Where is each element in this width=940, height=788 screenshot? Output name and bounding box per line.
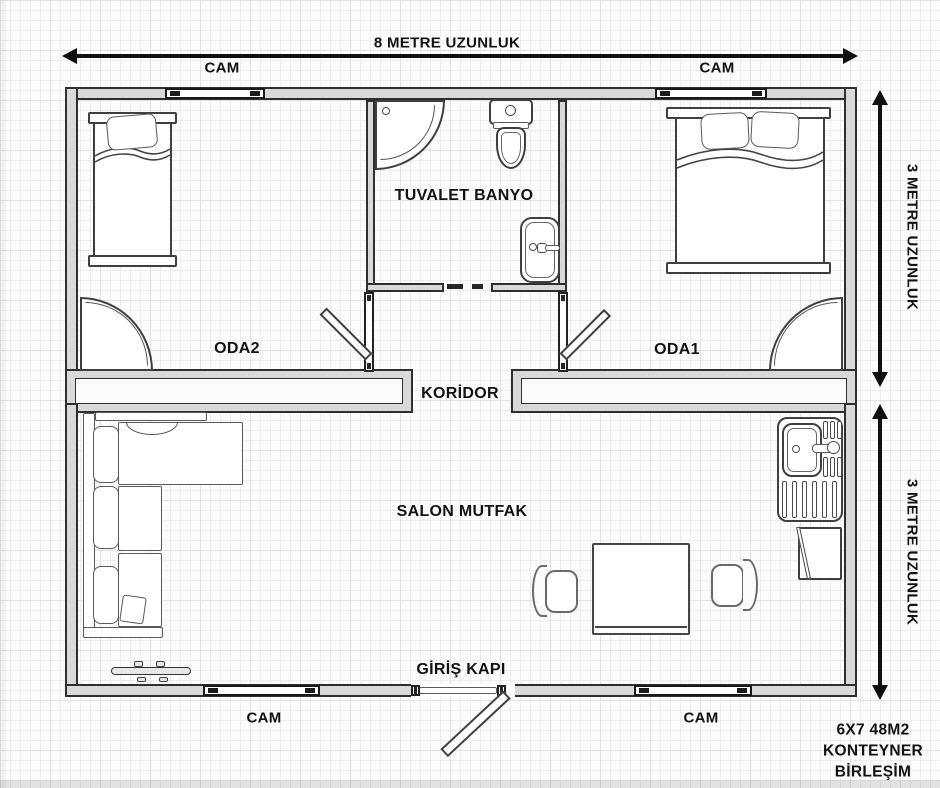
- plan-note-line2: KONTEYNER: [823, 741, 923, 762]
- drainboard-slat: [812, 481, 817, 518]
- cam-label-bottom-right: CAM: [683, 710, 718, 727]
- double-bed-blanket: [676, 142, 824, 178]
- room-label-living: SALON MUTFAK: [397, 503, 528, 521]
- bathroom-door-mark-left: [447, 284, 463, 289]
- entrance-threshold: [419, 687, 497, 694]
- drainboard-slat: [830, 457, 835, 477]
- dimension-label-right-upper: 3 METRE UZUNLUK: [904, 164, 921, 310]
- drainboard-slat: [823, 421, 828, 439]
- wardrobe-oda1: [769, 297, 843, 371]
- window-top-left: [165, 88, 265, 99]
- drainboard-slat: [822, 481, 827, 518]
- double-bed-pillow-left: [700, 112, 750, 150]
- bathroom-left-wall: [366, 100, 375, 292]
- entrance-label: GİRİŞ KAPI: [416, 661, 505, 679]
- lower-unit-right-wall: [844, 403, 857, 697]
- shower: [375, 100, 445, 170]
- arrow-head-left-icon: [62, 48, 77, 64]
- arrow-head-right-icon: [843, 48, 858, 64]
- mid-wall-cavity-left: [75, 378, 403, 404]
- window-bottom-right: [634, 685, 752, 696]
- upper-unit-right-wall: [844, 87, 857, 381]
- cam-label-bottom-left: CAM: [246, 710, 281, 727]
- floor-plan: 8 METRE UZUNLUK CAM CAM TUVALET BANYO: [0, 0, 940, 788]
- room-label-bathroom: TUVALET BANYO: [395, 187, 534, 205]
- sofa-cushion-3: [93, 566, 119, 624]
- kitchen-sink-drain-icon: [792, 445, 800, 453]
- toilet-bowl-rim: [501, 132, 521, 164]
- drainboard-slat: [782, 481, 787, 518]
- dimension-label-top: 8 METRE UZUNLUK: [374, 35, 520, 52]
- arrow-head-up-icon: [872, 90, 888, 105]
- room-label-corridor: KORİDOR: [421, 385, 499, 403]
- plan-note: 6X7 48M2 KONTEYNER BİRLEŞİM: [823, 720, 923, 783]
- arrow-head-down-icon: [872, 685, 888, 700]
- drainboard-slat: [802, 481, 807, 518]
- entrance-post-left: [411, 685, 420, 696]
- wardrobe-oda2-inner-curve: [85, 302, 148, 366]
- washbasin-drain-icon: [529, 243, 537, 251]
- upper-unit-left-wall: [65, 87, 78, 381]
- single-bed-pillow: [106, 113, 159, 151]
- chair-right-back: [743, 559, 758, 611]
- dining-table-edge-line: [595, 626, 687, 628]
- cam-label-top-right: CAM: [699, 60, 734, 77]
- drainboard-slat: [832, 481, 837, 518]
- low-bench-foot-left: [137, 677, 146, 682]
- arrow-head-down-icon: [872, 372, 888, 387]
- paper-edge-left: [0, 0, 6, 788]
- sofa-chaise-notch: [126, 422, 178, 435]
- sofa-seat-mid: [118, 486, 162, 551]
- bathroom-door-mark-right: [472, 284, 483, 289]
- kitchen-faucet-ring-icon: [827, 441, 840, 454]
- sofa-bottom-rail: [83, 627, 163, 638]
- sofa-chaise: [118, 422, 243, 485]
- room-label-oda2: ODA2: [214, 340, 260, 358]
- window-top-right: [655, 88, 767, 99]
- low-bench-bar: [111, 667, 191, 675]
- dimension-arrow-top: [74, 54, 844, 58]
- sofa-small-pillow: [119, 594, 147, 624]
- mid-wall-cavity-right: [521, 378, 847, 404]
- drainboard-slat: [823, 457, 828, 477]
- dining-table: [592, 543, 690, 635]
- drainboard-slat: [792, 481, 797, 518]
- sofa-top-rail: [95, 412, 207, 421]
- paper-edge-bottom: [0, 780, 940, 788]
- double-bed-pillow-right: [750, 111, 800, 149]
- toilet-button-icon: [505, 105, 516, 116]
- drainboard-slat: [837, 457, 842, 477]
- washbasin-faucet-stem: [545, 245, 560, 251]
- wardrobe-oda1-inner-curve: [774, 302, 838, 366]
- cam-label-top-left: CAM: [204, 60, 239, 77]
- plan-note-line1: 6X7 48M2: [823, 720, 923, 741]
- chair-left-seat: [545, 570, 578, 613]
- wardrobe-oda2: [80, 297, 153, 371]
- shower-drain-icon: [382, 107, 390, 115]
- window-bottom-left: [203, 685, 320, 696]
- sofa-cushion-1: [93, 426, 119, 483]
- toilet-bowl: [496, 127, 526, 169]
- entrance-door-leaf: [440, 690, 510, 757]
- arrow-head-up-icon: [872, 404, 888, 419]
- bathroom-bottom-wall-right: [491, 283, 567, 292]
- double-bed-footboard: [666, 262, 831, 274]
- sofa-cushion-2: [93, 486, 119, 549]
- dimension-arrow-right-upper: [878, 103, 882, 373]
- drainboard-slat: [830, 421, 835, 439]
- dimension-arrow-right-lower: [878, 417, 882, 687]
- chair-right-seat: [711, 564, 744, 607]
- lower-unit-left-wall: [65, 403, 78, 697]
- room-label-oda1: ODA1: [654, 341, 700, 359]
- single-bed-footboard: [88, 255, 177, 267]
- low-bench-foot-right: [159, 677, 168, 682]
- drainboard-slat: [837, 421, 842, 439]
- dimension-label-right-lower: 3 METRE UZUNLUK: [904, 479, 921, 625]
- bathroom-bottom-wall-left: [366, 283, 444, 292]
- plan-note-line3: BİRLEŞİM: [823, 762, 923, 783]
